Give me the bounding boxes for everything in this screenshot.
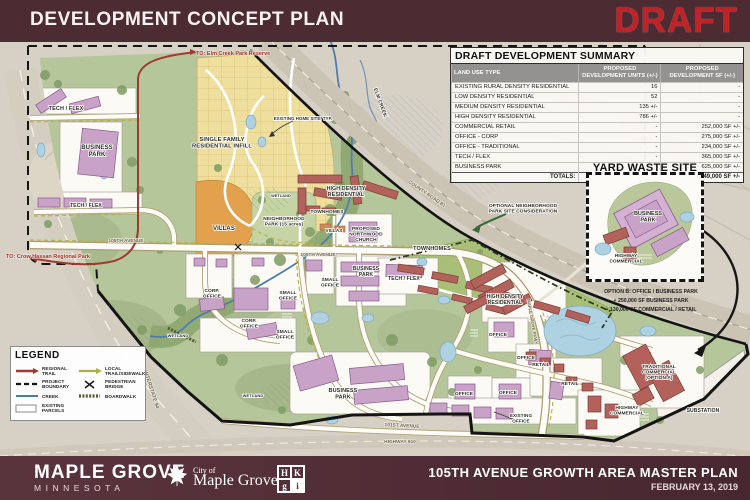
legend-item-regional-trail: REGIONAL TRAIL <box>15 366 78 376</box>
map-label-tech-flex-west: TECH / FLEX <box>49 106 84 112</box>
yard-waste-inset[interactable]: BUSINESSPARK HIGHWAYCOMMERCIAL <box>586 172 704 282</box>
table-row: OFFICE - CORP-275,000 SF +/- <box>452 133 744 143</box>
cell-type: MEDIUM DENSITY RESIDENTIAL <box>452 103 579 113</box>
option-b-line-2: + 250,000 SF BUSINESS PARK <box>586 297 716 306</box>
map-label-traditional-commercial: TRADITIONALCOMMERCIAL(OPTION A) <box>642 364 676 381</box>
map-label-existing-office: EXISTINGOFFICE <box>510 413 533 423</box>
map-label-105th-avenue-e: 105TH AVENUE <box>300 252 336 258</box>
cell-type: EXISTING RURAL DENSITY RESIDENTIAL <box>452 83 579 93</box>
map-label-high-density-east: HIGH DENSITYRESIDENTIAL <box>487 294 524 306</box>
hkgi-letter-h: H <box>278 466 291 479</box>
header-bar: DEVELOPMENT CONCEPT PLAN DRAFT <box>0 0 750 42</box>
legend-item-local-trail: LOCAL TRAIL/SIDEWALK <box>78 366 141 376</box>
column-header-units: PROPOSED DEVELOPMENT UNITS (+/-) <box>579 64 661 83</box>
map-label-substation: SUBSTATION <box>687 408 720 414</box>
cell-units: - <box>579 123 661 133</box>
map-label-optional-park: OPTIONAL NEIGHBORHOODPARK SITE CONSIDERA… <box>489 203 558 215</box>
map-label-retail-1: RETAIL <box>532 362 550 368</box>
maple-leaf-icon <box>166 464 188 488</box>
cell-type: TECH / FLEX <box>452 153 579 163</box>
map-label-small-office-3: SMALLOFFICE <box>276 329 295 341</box>
map-label-wetland-3: WETLAND <box>243 393 264 398</box>
regional-trail-icon <box>15 367 39 375</box>
column-header-sf: PROPOSED DEVELOPMENT SF (+/-) <box>661 64 743 83</box>
map-label-tech-flex-west2: TECH / FLEX <box>70 203 102 209</box>
yard-waste-pond-2 <box>680 212 694 222</box>
map-label-single-family: SINGLE FAMILYRESIDENTIAL INFILL <box>192 137 252 150</box>
map-label-townhomes-central: TOWNHOMES <box>310 209 344 215</box>
footer-city-name: MAPLE GROVE <box>34 463 185 483</box>
map-label-villas: VILLAS <box>213 226 235 232</box>
logo-city-name: Maple Grove <box>193 476 278 486</box>
legend-item-project-boundary: PROJECT BOUNDARY <box>15 379 78 389</box>
hkgi-logo: H K g i <box>277 465 305 493</box>
option-b-line-1: OPTION B: OFFICE / BUSINESS PARK <box>586 288 716 297</box>
cell-type: OFFICE - CORP <box>452 133 579 143</box>
creek-icon <box>15 392 39 400</box>
boardwalk-icon <box>78 392 102 400</box>
map-label-corp-office-1: CORP.OFFICE <box>203 288 222 300</box>
cell-type: OFFICE - TRADITIONAL <box>452 143 579 153</box>
plan-date: FEBRUARY 13, 2019 <box>428 482 738 492</box>
map-label-wetland-2: WETLAND <box>168 333 189 338</box>
map-label-neighborhood-park: NEIGHBORHOODPARK (15 acres) <box>263 216 305 228</box>
table-row: HIGH DENSITY RESIDENTIAL786 +/-- <box>452 113 744 123</box>
table-row: MEDIUM DENSITY RESIDENTIAL135 +/-- <box>452 103 744 113</box>
cell-units: - <box>579 133 661 143</box>
map-label-existing-home: EXISTING HOME SITE, TYP. <box>274 116 333 121</box>
cell-sf: - <box>661 93 743 103</box>
map-label-office-2: OFFICE <box>517 355 536 361</box>
hkgi-letter-k: K <box>291 466 304 479</box>
project-boundary-icon <box>15 380 39 388</box>
legend-item-creek: CREEK <box>15 392 78 400</box>
cell-sf: 275,000 SF +/- <box>661 133 743 143</box>
map-label-tech-flex-central: TECH / FLEX <box>388 276 420 282</box>
map-label-office-4: OFFICE <box>499 390 518 396</box>
cell-units: - <box>579 143 661 153</box>
cell-sf: - <box>661 113 743 123</box>
pedestrian-bridge-icon <box>78 380 102 389</box>
cell-type: COMMERCIAL RETAIL <box>452 123 579 133</box>
cell-type: LOW DENSITY RESIDENTIAL <box>452 93 579 103</box>
existing-parcels-icon <box>15 404 39 413</box>
footer-state-name: MINNESOTA <box>34 483 185 493</box>
cell-sf: 252,000 SF +/- <box>661 123 743 133</box>
map-label-small-office-2: SMALLOFFICE <box>279 290 298 302</box>
page-title: DEVELOPMENT CONCEPT PLAN <box>30 9 344 31</box>
map-label-wetland-1: WETLAND <box>271 194 291 198</box>
cell-units: 135 +/- <box>579 103 661 113</box>
legend-item-pedestrian-bridge: PEDESTRIAN BRIDGE <box>78 379 141 389</box>
map-label-high-density-central: HIGH DENSITYRESIDENTIAL <box>327 186 366 198</box>
map-label-office-1: OFFICE <box>489 332 508 338</box>
local-trail-icon <box>78 367 102 375</box>
yard-waste-pond-1 <box>595 243 611 255</box>
map-label-to-crow-hassan: TO: Crow Hassan Regional Park <box>6 254 91 260</box>
plan-title-text: 105TH AVENUE GROWTH AREA MASTER PLAN <box>428 465 738 480</box>
map-label-townhomes-east: TOWNHOMES <box>413 246 451 252</box>
legend-item-existing-parcels: EXISTING PARCELS <box>15 403 78 413</box>
development-concept-plan-page: .bp{fill:#c9a2c8;stroke:#8a5a8c;stroke-w… <box>0 0 750 500</box>
cell-sf: - <box>661 83 743 93</box>
draft-stamp: DRAFT <box>614 1 738 41</box>
legend[interactable]: LEGEND REGIONAL TRAIL PROJECT BOUNDARY C… <box>10 346 146 421</box>
legend-item-boardwalk: BOARDWALK <box>78 392 141 400</box>
option-b-line-3: + 130,000 SF COMMERCIAL / RETAIL <box>586 306 716 315</box>
totals-label: TOTALS: <box>452 173 579 183</box>
map-label-corp-office-2: CORP.OFFICE <box>240 318 259 330</box>
table-row: COMMERCIAL RETAIL-252,000 SF +/- <box>452 123 744 133</box>
map-label-to-elm-creek: TO: Elm Creek Park Reserve <box>196 51 270 57</box>
map-label-villas-central: VILLAS <box>326 228 343 233</box>
summary-table-title: DRAFT DEVELOPMENT SUMMARY <box>451 48 743 64</box>
cell-units: 16 <box>579 83 661 93</box>
hkgi-letter-i: i <box>291 479 304 492</box>
option-b-note: OPTION B: OFFICE / BUSINESS PARK + 250,0… <box>586 288 716 315</box>
map-label-office-3: OFFICE <box>455 391 474 397</box>
cell-type: HIGH DENSITY RESIDENTIAL <box>452 113 579 123</box>
cell-type: BUSINESS PARK <box>452 163 579 173</box>
map-label-highway-610: HIGHWAY 610 <box>384 439 416 445</box>
maple-grove-wordmark: MAPLE GROVE MINNESOTA <box>34 463 185 493</box>
cell-units: 52 <box>579 93 661 103</box>
column-header-land-use: LAND USE TYPE <box>452 64 579 83</box>
legend-title: LEGEND <box>15 350 141 361</box>
footer-bar: MAPLE GROVE MINNESOTA City of Maple Grov… <box>0 456 750 500</box>
cell-units: 786 +/- <box>579 113 661 123</box>
city-of-maple-grove-logo: City of Maple Grove <box>166 464 278 488</box>
table-row: EXISTING RURAL DENSITY RESIDENTIAL16- <box>452 83 744 93</box>
table-row: LOW DENSITY RESIDENTIAL52- <box>452 93 744 103</box>
table-row: OFFICE - TRADITIONAL-234,000 SF +/- <box>452 143 744 153</box>
map-label-retail-2: RETAIL <box>561 381 579 387</box>
summary-header-row: LAND USE TYPE PROPOSED DEVELOPMENT UNITS… <box>452 64 744 83</box>
map-label-105th-avenue-w: 105TH AVENUE <box>108 238 144 244</box>
cell-sf: 234,000 SF +/- <box>661 143 743 153</box>
plan-title-block: 105TH AVENUE GROWTH AREA MASTER PLAN FEB… <box>428 465 738 492</box>
cell-sf: - <box>661 103 743 113</box>
hkgi-letter-g: g <box>278 479 291 492</box>
map-label-small-office-1: SMALLOFFICE <box>321 277 340 289</box>
